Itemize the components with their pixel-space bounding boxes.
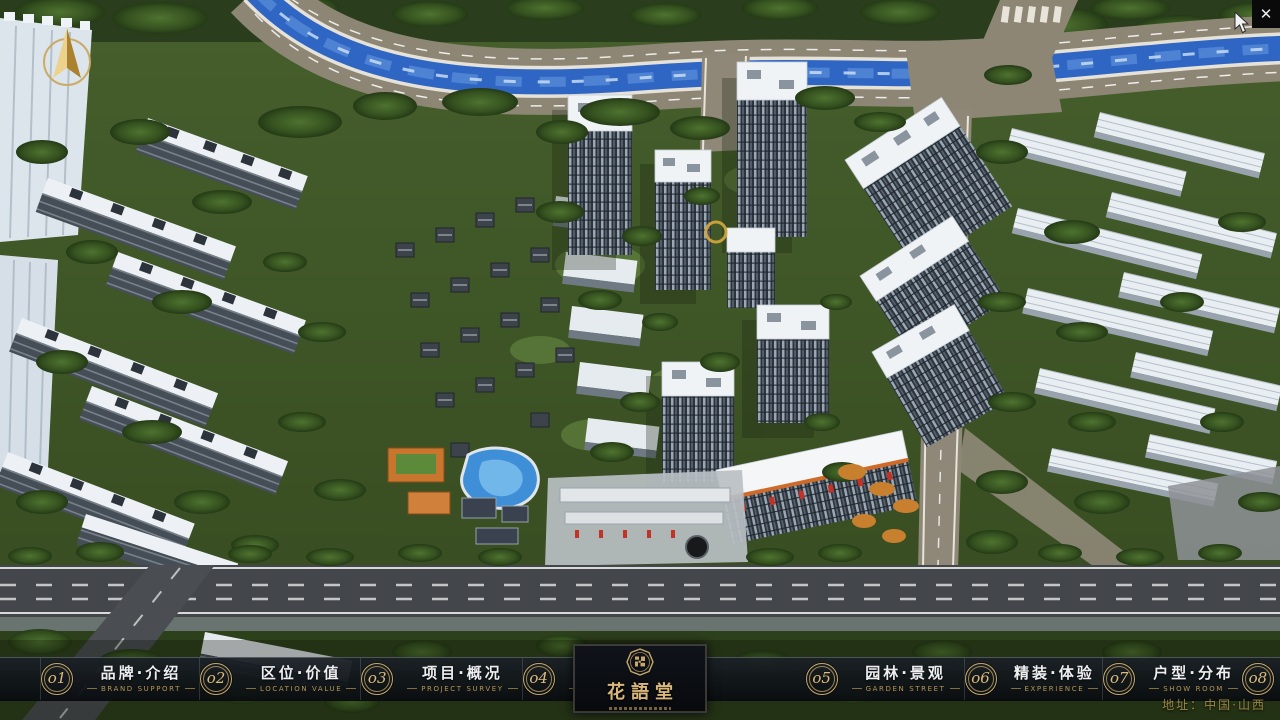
nav-title: 园林·景观 <box>865 665 946 682</box>
nav-number-badge: o6 <box>965 663 997 695</box>
nav-title: 精装·体验 <box>1014 665 1095 682</box>
nav-title: 户型·分布 <box>1153 665 1234 682</box>
nav-subtitle: GARDEN STREET <box>848 685 964 693</box>
nav-subtitle: BRAND SUPPORT <box>83 685 199 693</box>
nav-number: o1 <box>48 671 67 686</box>
nav-title: 项目·概况 <box>422 665 503 682</box>
entrance-plaza <box>545 470 748 566</box>
nav-item-brand-intro[interactable]: o1 品牌·介绍 BRAND SUPPORT <box>41 658 200 700</box>
nav-number: o5 <box>812 671 831 686</box>
logo-tagline-decoration <box>609 707 671 710</box>
nav-number: o7 <box>1110 671 1129 686</box>
nav-number: o2 <box>207 671 226 686</box>
close-button[interactable]: ✕ <box>1252 0 1280 28</box>
sales-presentation-screen: ✕ o1 品牌·介绍 BRAND SUPPORT o2 区位·价值 LOCATI… <box>0 0 1280 720</box>
nav-number-badge: o3 <box>361 663 393 695</box>
nav-number: o8 <box>1249 671 1268 686</box>
nav-item-project-survey[interactable]: o3 项目·概况 PROJECT SURVEY <box>361 658 522 700</box>
site-masterplan-render <box>0 0 1280 720</box>
nav-number-badge: o5 <box>806 663 838 695</box>
nav-number-badge: o2 <box>200 663 232 695</box>
nav-item-one-home-one-view[interactable]: o8 一房·一景 COMMUNITY <box>1242 658 1280 700</box>
nav-number: o6 <box>971 671 990 686</box>
logo-seal-icon <box>626 648 654 676</box>
nav-number-badge: o8 <box>1242 663 1274 695</box>
compass-north-icon <box>38 24 96 90</box>
project-address: 地址：中国·山西 <box>1162 696 1266 713</box>
nav-item-floorplan-distribution[interactable]: o7 户型·分布 SHOW ROOM <box>1103 658 1242 700</box>
project-logo-panel[interactable]: 花語堂 <box>573 644 707 713</box>
nav-title: 区位·价值 <box>261 665 342 682</box>
nav-item-garden-landscape[interactable]: o5 园林·景观 GARDEN STREET <box>806 658 965 700</box>
logo-title: 花語堂 <box>601 678 679 704</box>
nav-number-badge: o1 <box>41 663 73 695</box>
nav-number: o3 <box>368 671 387 686</box>
nav-number-badge: o4 <box>523 663 555 695</box>
nav-item-finishing-experience[interactable]: o6 精装·体验 EXPERIENCE <box>965 658 1104 700</box>
nav-subtitle: LOCATION VALUE <box>242 685 360 693</box>
nav-title: 品牌·介绍 <box>101 665 182 682</box>
nav-subtitle: PROJECT SURVEY <box>403 685 521 693</box>
nav-item-location-value[interactable]: o2 区位·价值 LOCATION VALUE <box>200 658 361 700</box>
navbar-spacer <box>0 658 41 700</box>
nav-subtitle: EXPERIENCE <box>1007 685 1103 693</box>
nav-number: o4 <box>529 671 548 686</box>
nav-subtitle: SHOW ROOM <box>1145 685 1242 693</box>
nav-number-badge: o7 <box>1103 663 1135 695</box>
